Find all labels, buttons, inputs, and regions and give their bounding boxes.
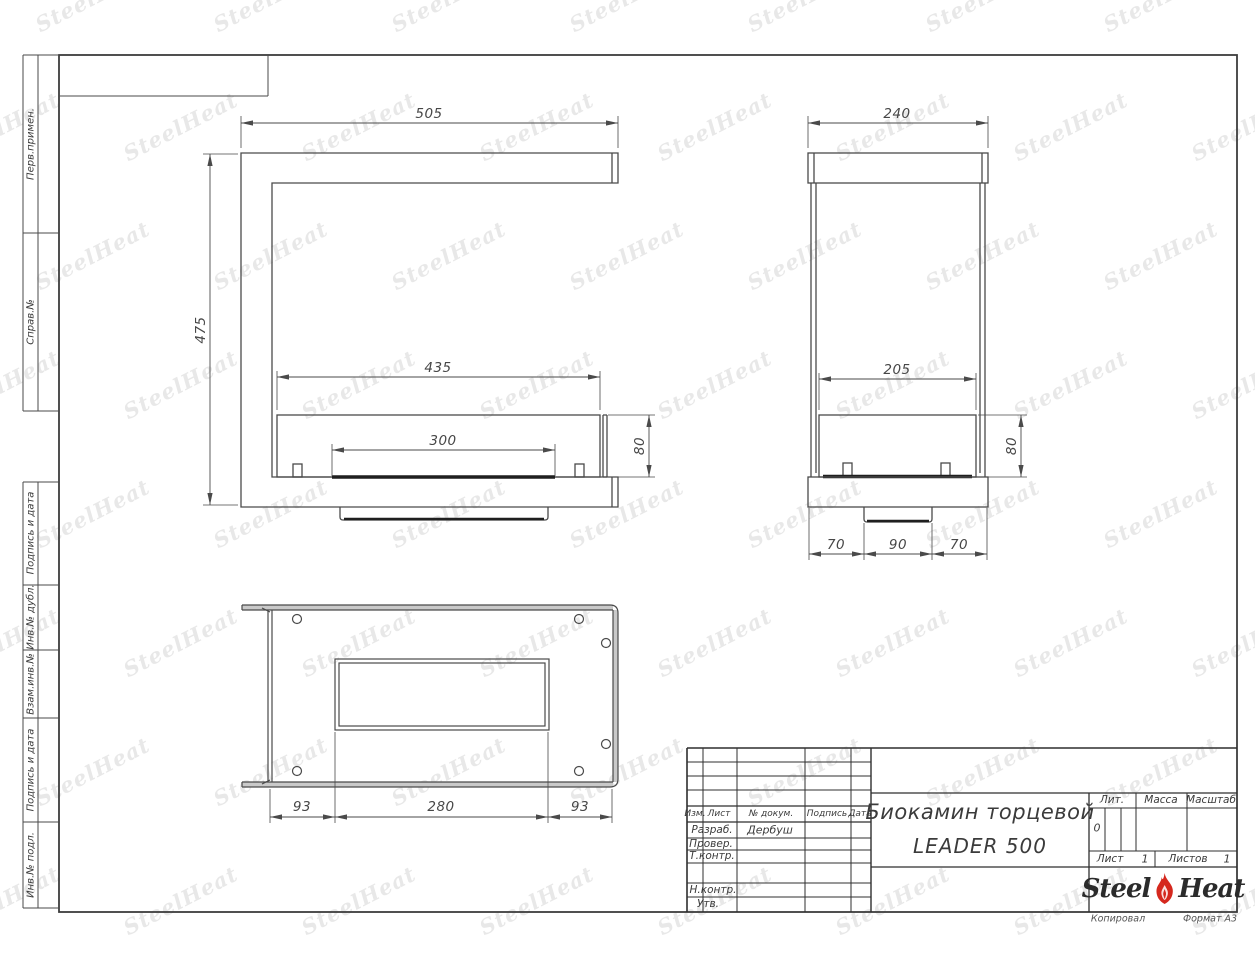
page-frame (59, 55, 1237, 912)
top-burner-opening (335, 659, 549, 730)
margin-label-inv-dubl: Инв.№ дубл. (26, 584, 37, 649)
margin-label-inv-podl: Инв.№ подл. (26, 832, 37, 898)
tb-razrab-name: Дербуш (747, 824, 793, 837)
top-left-wall (262, 608, 272, 784)
logo-steel-text: Steel (1082, 874, 1151, 904)
margin-label-podpis-data-1: Подпись и дата (26, 492, 37, 575)
dim-top-seg-right: 93 (571, 799, 589, 815)
tb-masshtab-label: Масштаб (1186, 794, 1236, 806)
dim-front-burner: 300 (429, 433, 456, 449)
footer-kopiroval: Копировал (1091, 914, 1145, 925)
tb-row-nkontr: Н.контр. (690, 884, 737, 896)
mount-hole (575, 767, 584, 776)
front-burner-tab-right (575, 464, 584, 477)
dim-top-seg-left: 93 (293, 799, 311, 815)
drawing-linework (0, 0, 1255, 970)
tb-sheets-label: Листов (1168, 853, 1207, 865)
dim-side-seg-right: 70 (950, 537, 968, 553)
dim-side-seg-left: 70 (827, 537, 845, 553)
steelheat-logo: Steel Heat (1082, 873, 1245, 905)
dim-front-height: 475 (193, 316, 209, 343)
tb-col-list: Лист (708, 809, 731, 819)
margin-label-perv-primen: Перв.примен. (26, 108, 37, 180)
front-glass-panel (603, 415, 607, 477)
tb-lit-value: 0 (1094, 822, 1101, 835)
tb-col-dokum: № докум. (749, 809, 793, 819)
mount-hole (293, 767, 302, 776)
drawing-sheet: SteelHeatSteelHeatSteelHeatSteelHeatStee… (0, 0, 1255, 970)
dim-front-opening: 435 (424, 360, 451, 376)
margin-label-vzam-inv: Взам.инв.№ (26, 653, 37, 715)
margin-label-sprav-no: Справ.№ (26, 299, 37, 344)
tb-col-podpis: Подпись (807, 809, 847, 819)
dim-side-seg-center: 90 (889, 537, 907, 553)
tb-row-razrab: Разраб. (691, 824, 732, 836)
front-burner-tab-left (293, 464, 302, 477)
flame-icon (1151, 873, 1177, 905)
mount-hole (293, 615, 302, 624)
dim-top-seg-center: 280 (427, 799, 454, 815)
top-view (242, 605, 618, 787)
footer-format: Формат А3 (1183, 914, 1237, 925)
tb-col-izm: Изм. (684, 809, 705, 819)
mount-hole (575, 615, 584, 624)
side-view (808, 153, 988, 522)
tb-lit-label: Лит. (1100, 794, 1124, 806)
margin-label-podpis-data-2: Подпись и дата (26, 729, 37, 812)
dim-side-box-height: 80 (1004, 437, 1020, 455)
front-view (241, 153, 618, 520)
tb-sheets-value: 1 (1224, 853, 1231, 866)
dim-side-opening: 205 (883, 362, 910, 378)
dim-front-width: 505 (415, 106, 442, 122)
logo-heat-text: Heat (1178, 874, 1244, 904)
mount-hole (602, 740, 611, 749)
mount-hole (602, 639, 611, 648)
tb-row-prover: Провер. (689, 838, 733, 850)
tb-title-line2: LEADER 500 (913, 834, 1047, 858)
tb-row-utv: Утв. (697, 898, 719, 910)
dim-front-box-height: 80 (632, 437, 648, 455)
tb-massa-label: Масса (1144, 794, 1177, 806)
tb-sheet-value: 1 (1142, 853, 1149, 866)
tb-title-line1: Биокамин торцевой (865, 800, 1094, 824)
tb-row-tkontr: Т.контр. (689, 850, 735, 862)
dim-side-width: 240 (883, 106, 910, 122)
tb-sheet-label: Лист (1097, 853, 1124, 865)
